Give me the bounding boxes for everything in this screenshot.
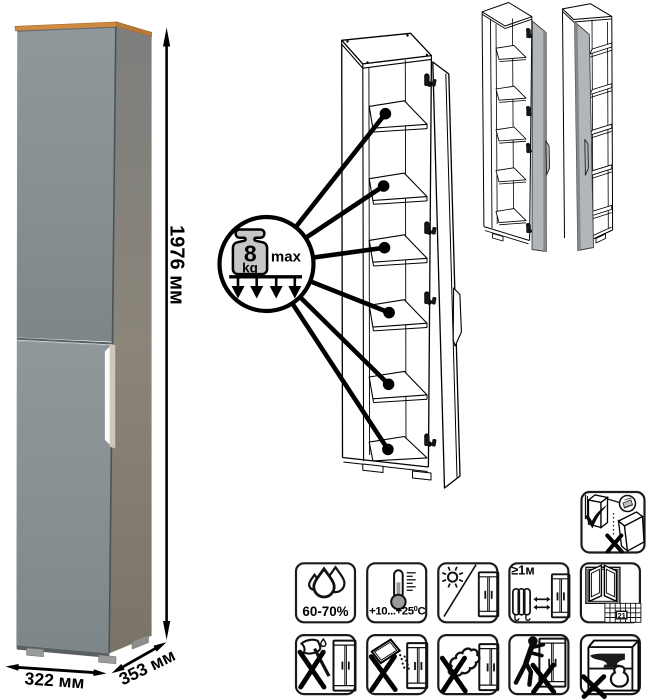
svg-text:322 мм: 322 мм <box>24 668 85 692</box>
svg-text:+10...+250C: +10...+250C <box>369 604 425 618</box>
svg-text:kg: kg <box>242 260 258 275</box>
svg-text:60-70%: 60-70% <box>302 604 348 619</box>
svg-text:1976 мм: 1976 мм <box>165 225 187 305</box>
svg-text:≥1м: ≥1м <box>511 563 534 577</box>
svg-text:21: 21 <box>618 611 626 620</box>
svg-text:max: max <box>271 248 302 265</box>
